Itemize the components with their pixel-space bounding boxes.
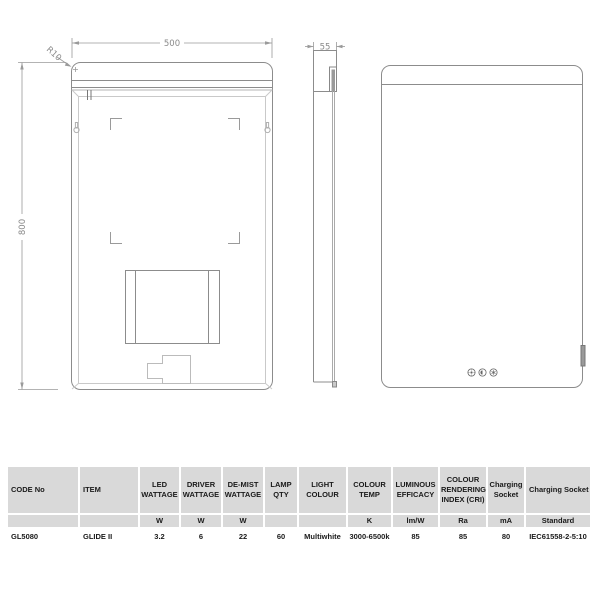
col-header-charging-socket-standard: Charging Socket	[526, 467, 590, 513]
corner-brackets	[111, 119, 240, 244]
unit-lamp-qty	[265, 515, 297, 527]
width-dimension-label: 500	[164, 39, 180, 49]
unit-light-colour	[299, 515, 346, 527]
value-demist-wattage: 22	[223, 529, 263, 545]
inner-bezel	[72, 90, 272, 389]
spec-sheet-page: 500 800 R10	[0, 0, 600, 600]
col-header-item: ITEM	[80, 467, 138, 513]
cable-entry-marks	[88, 90, 92, 100]
back-panel-outline	[72, 63, 273, 390]
col-header-led-wattage: LED WATTAGE	[140, 467, 179, 513]
radius-callout: R10	[44, 45, 78, 72]
junction-box	[148, 356, 191, 384]
col-header-demist-wattage: DE-MIST WATTAGE	[223, 467, 263, 513]
value-item: GLIDE II	[80, 529, 138, 545]
back-view-drawing	[72, 63, 273, 390]
value-charging-socket-standard: IEC61558-2-5:10	[526, 529, 590, 545]
value-colour-temp: 3000-6500k	[348, 529, 391, 545]
unit-charging-socket-ma: mA	[488, 515, 524, 527]
col-header-light-colour: LIGHT COLOUR	[299, 467, 346, 513]
value-code-no: GL5080	[8, 529, 78, 545]
value-luminous-efficacy: 85	[393, 529, 438, 545]
demister-box	[126, 271, 220, 344]
brightness-icon	[468, 369, 475, 376]
col-header-driver-wattage: DRIVER WATTAGE	[181, 467, 221, 513]
depth-dimension-label: 55	[320, 43, 331, 53]
unit-item	[80, 515, 138, 527]
table-header-row: CODE No ITEM LED WATTAGE DRIVER WATTAGE …	[8, 467, 590, 513]
bottom-clip	[333, 382, 337, 388]
charging-socket	[581, 346, 585, 367]
value-driver-wattage: 6	[181, 529, 221, 545]
radius-label: R10	[44, 45, 63, 64]
width-dimension: 500	[72, 38, 272, 58]
col-header-code-no: CODE No	[8, 467, 78, 513]
unit-charging-socket-standard: Standard	[526, 515, 590, 527]
table-data-row: GL5080 GLIDE II 3.2 6 22 60 Multiwhite 3…	[8, 529, 590, 545]
depth-dimension: 55	[305, 42, 345, 53]
unit-cri: Ra	[440, 515, 486, 527]
value-light-colour: Multiwhite	[299, 529, 346, 545]
col-header-cri: COLOUR RENDERING INDEX (CRI)	[440, 467, 486, 513]
value-cri: 85	[440, 529, 486, 545]
unit-driver-wattage: W	[181, 515, 221, 527]
demist-icon	[490, 369, 497, 376]
front-panel-outline	[382, 66, 583, 388]
col-header-colour-temp: COLOUR TEMP	[348, 467, 391, 513]
col-header-charging-socket-ma: Charging Socket	[488, 467, 524, 513]
colour-change-icon	[479, 369, 486, 376]
col-header-lamp-qty: LAMP QTY	[265, 467, 297, 513]
unit-code-no	[8, 515, 78, 527]
table-units-row: W W W K lm/W Ra mA Standard	[8, 515, 590, 527]
unit-luminous-efficacy: lm/W	[393, 515, 438, 527]
height-dimension: 800	[18, 63, 66, 390]
unit-led-wattage: W	[140, 515, 179, 527]
spec-table: CODE No ITEM LED WATTAGE DRIVER WATTAGE …	[6, 465, 592, 547]
value-lamp-qty: 60	[265, 529, 297, 545]
unit-colour-temp: K	[348, 515, 391, 527]
value-led-wattage: 3.2	[140, 529, 179, 545]
height-dimension-label: 800	[18, 219, 28, 235]
unit-demist-wattage: W	[223, 515, 263, 527]
touch-controls	[468, 369, 497, 376]
value-charging-socket-ma: 80	[488, 529, 524, 545]
technical-drawings: 500 800 R10	[0, 0, 600, 460]
front-view-drawing	[382, 66, 586, 388]
col-header-luminous-efficacy: LUMINOUS EFFICACY	[393, 467, 438, 513]
side-view-drawing	[314, 51, 337, 388]
